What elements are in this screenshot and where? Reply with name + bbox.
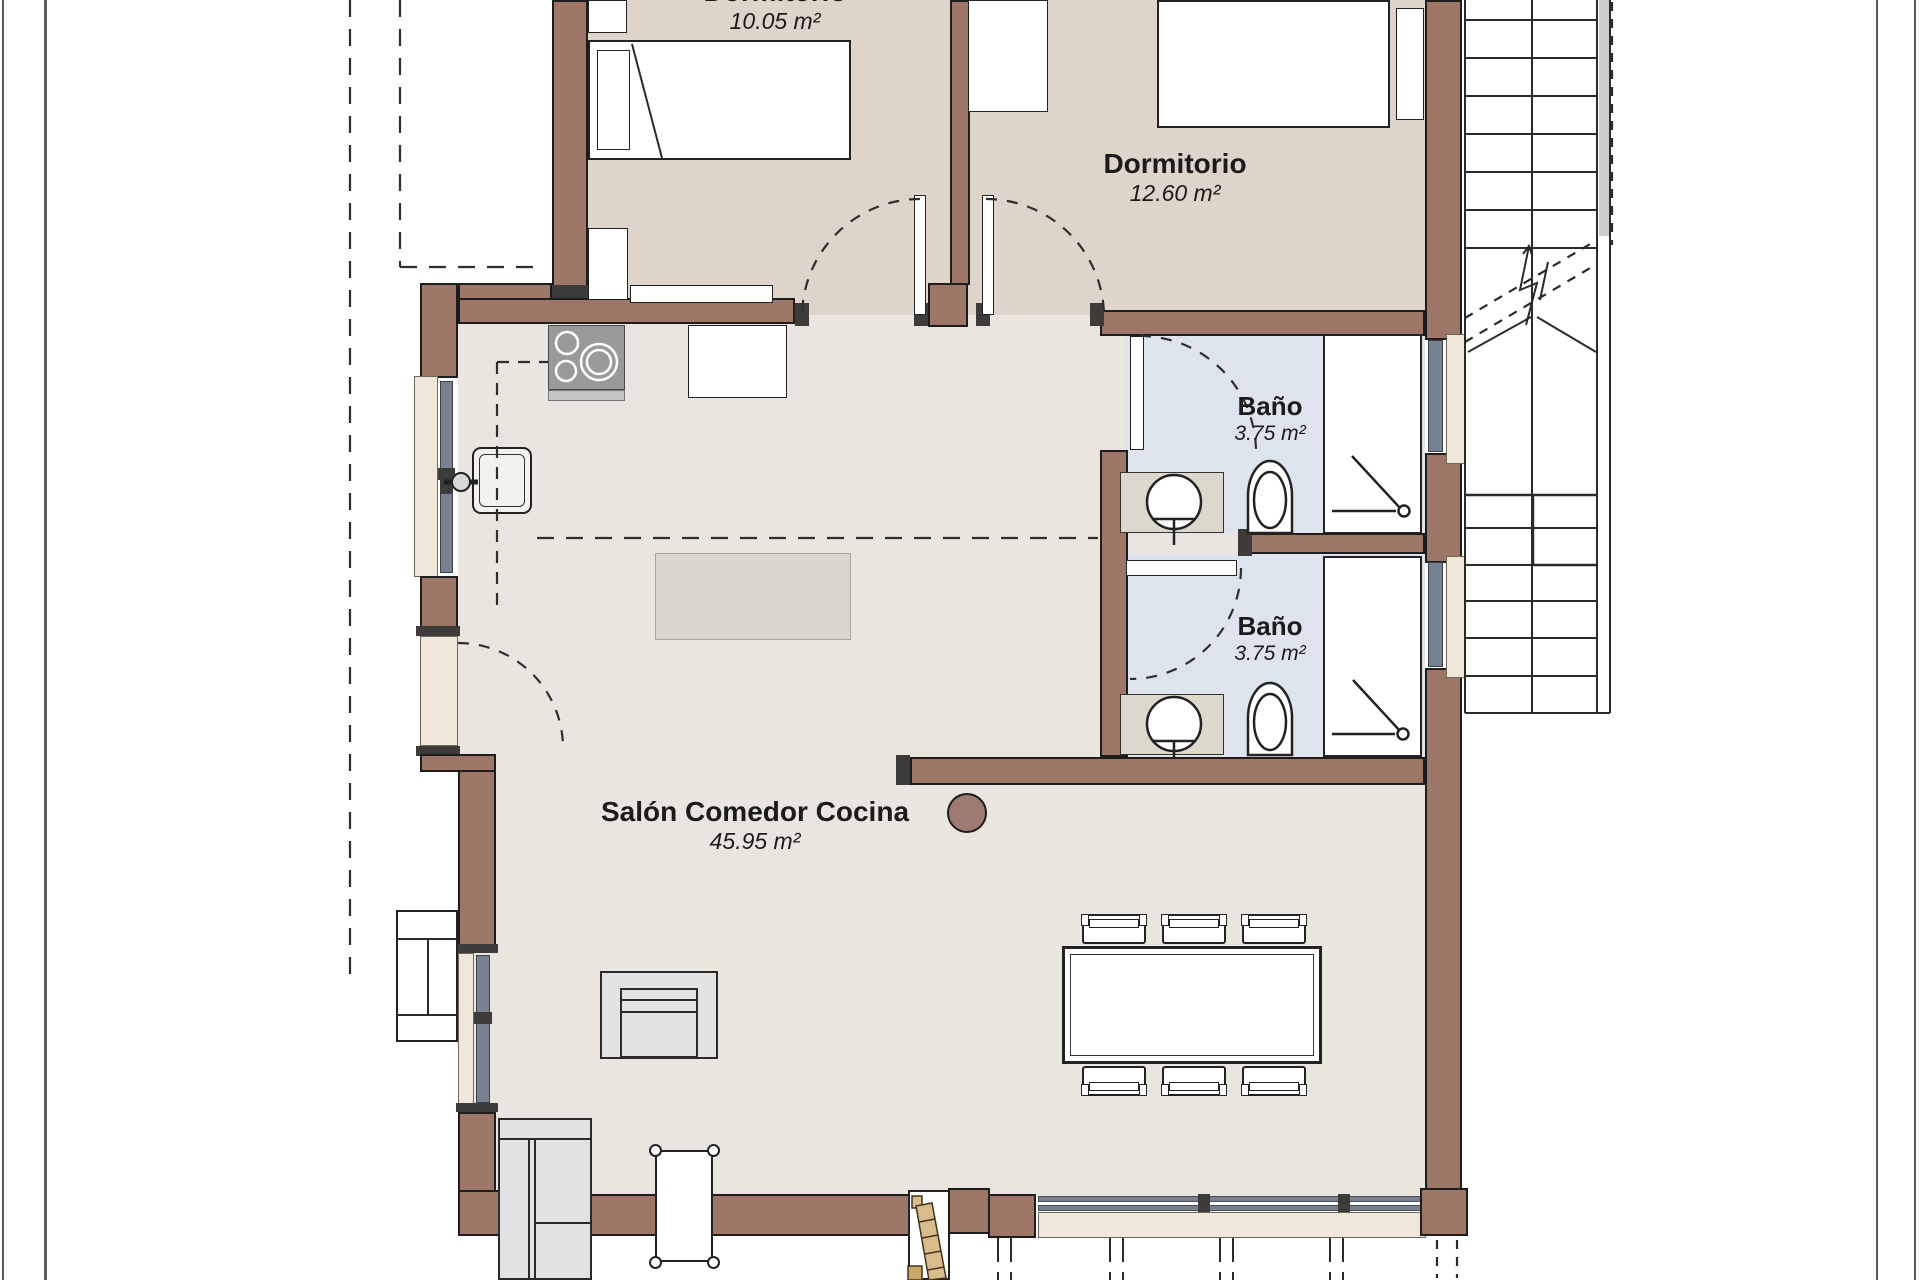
wall-west-mid [420, 576, 458, 628]
south-window-glazing [1038, 1205, 1426, 1211]
bath2-shower-tray [1323, 556, 1422, 757]
table-leg [707, 1256, 720, 1269]
wall-bedroom1-west [552, 0, 588, 290]
sofa-line [498, 1138, 592, 1140]
dining-table-inner [1070, 954, 1314, 1056]
wall-end-cap [896, 755, 910, 785]
wall-east-upper [1425, 0, 1462, 340]
terrace-outline-dashed [400, 0, 542, 267]
wall-bath-mid [1240, 533, 1425, 554]
chair-icon [1162, 1066, 1226, 1096]
door-leaf-bath1 [1130, 336, 1144, 450]
door-jamb [795, 303, 809, 326]
south-window-divider [1338, 1194, 1350, 1212]
pillow-icon [597, 50, 630, 150]
stove-front-strip [548, 390, 625, 401]
sofa-icon [498, 1118, 592, 1280]
armchair-cushion-line [620, 1011, 698, 1013]
kitchen-window-sill [414, 376, 438, 577]
terrace-door-leaf [420, 636, 458, 746]
chair-icon [1082, 1066, 1146, 1096]
kitchen-tap-base [440, 472, 452, 494]
wall-bath-south [910, 757, 1425, 785]
sheet-border-left-inner [44, 0, 47, 1280]
bath2-vanity-counter [1120, 694, 1224, 755]
wardrobe-icon [588, 228, 628, 300]
kitchen-sink-inner [479, 454, 525, 507]
door-jamb [416, 626, 460, 636]
sofa-line [536, 1222, 592, 1224]
door-leaf-bath2 [1126, 560, 1237, 576]
chair-icon [1082, 914, 1146, 944]
door-leaf-bedroom2 [982, 195, 994, 315]
window-cap [456, 944, 498, 953]
wall-east-lower [1425, 668, 1462, 1190]
outdoor-counter-line [396, 1014, 458, 1016]
outdoor-counter-line [427, 938, 429, 1014]
sheet-border-right-inner [1876, 0, 1878, 1280]
wall-block [948, 1188, 990, 1234]
stair-side-band [1599, 0, 1611, 236]
wall-west-upper [420, 283, 458, 378]
table-leg [707, 1144, 720, 1157]
salon-window-mullion [474, 1012, 492, 1024]
table-leg [649, 1256, 662, 1269]
table-leg [649, 1144, 662, 1157]
floor-plan: Dormitorio 10.05 m² Dormitorio 12.60 m² … [0, 0, 1920, 1280]
stair-chevron [1468, 317, 1596, 352]
wall-corner-southeast [1420, 1188, 1468, 1236]
stove-icon [548, 325, 625, 390]
door-jamb [1090, 303, 1104, 326]
sheet-border-left-outer [2, 0, 4, 1280]
corner-dashed [1437, 1240, 1457, 1278]
wall-bedroom-divider [950, 0, 970, 285]
stair-break-dashed [1465, 240, 1597, 342]
coffee-table-icon [655, 1150, 713, 1262]
wall-bath-north [1100, 310, 1425, 336]
bath1-shower-tray [1323, 334, 1422, 534]
door-jamb [1238, 529, 1252, 556]
sofa-line [528, 1140, 530, 1280]
bath1-vanity-counter [1120, 472, 1224, 533]
south-window-glazing [1038, 1196, 1426, 1202]
ladder-niche [908, 1190, 950, 1280]
bath2-window-sill [1446, 556, 1466, 678]
kitchen-island [655, 553, 851, 640]
bath2-window-glazing [1428, 562, 1443, 667]
door-leaf-bedroom1 [914, 195, 926, 315]
stair-rails [1465, 0, 1610, 713]
armchair-cushion-line [620, 999, 698, 1001]
window-cap [456, 1103, 498, 1112]
bath1-window-glazing [1428, 340, 1443, 452]
wall-west-lower-a [458, 770, 496, 946]
sofa-line [534, 1140, 536, 1280]
kitchen-counter-unit [688, 325, 787, 398]
pergola-ticks [998, 1238, 1343, 1280]
chair-icon [1242, 914, 1306, 944]
south-window-sill [1038, 1212, 1426, 1238]
stair-break-zigzag [1520, 246, 1548, 325]
salon-window-glazing [476, 955, 490, 1103]
stair-lower-box [1465, 495, 1597, 565]
chair-icon [1162, 914, 1226, 944]
chair-icon [1242, 1066, 1306, 1096]
wall-east-mid [1425, 453, 1462, 563]
closet-icon [968, 0, 1048, 112]
wall-center-block [928, 283, 968, 327]
south-window-divider [1198, 1194, 1210, 1212]
nightstand-icon [588, 0, 627, 33]
sheet-border-right-outer [1914, 0, 1916, 1280]
bed-icon [1157, 0, 1390, 128]
wardrobe-icon [630, 285, 773, 303]
stair-treads [1465, 20, 1597, 676]
column-icon [947, 793, 987, 833]
bath1-window-sill [1446, 334, 1466, 464]
nightstand-icon [1396, 8, 1424, 120]
wall-block [988, 1194, 1036, 1238]
salon-window-sill [458, 953, 474, 1105]
wall-west-lower-b [458, 1112, 496, 1196]
